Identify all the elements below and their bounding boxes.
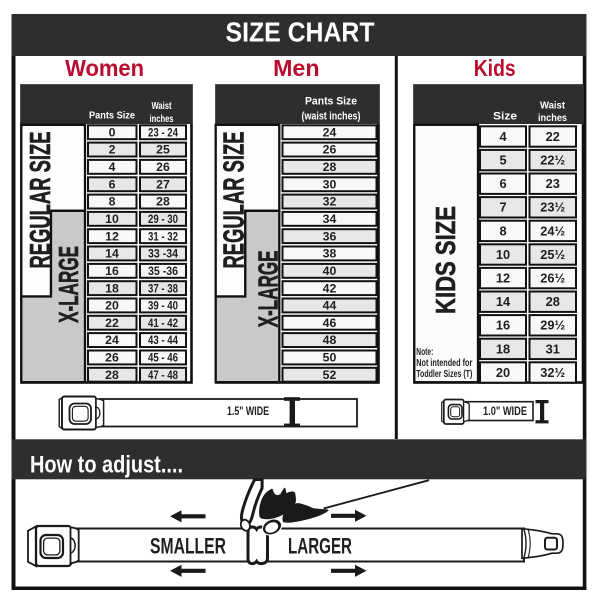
svg-text:40: 40 — [323, 264, 337, 278]
svg-text:26: 26 — [156, 160, 170, 174]
svg-text:1.0" WIDE: 1.0" WIDE — [483, 406, 527, 418]
svg-text:16: 16 — [496, 318, 510, 333]
svg-text:X-LARGE: X-LARGE — [53, 246, 84, 323]
svg-text:46: 46 — [323, 316, 337, 330]
svg-text:SMALLER: SMALLER — [150, 534, 226, 559]
svg-text:How to adjust....: How to adjust.... — [30, 452, 183, 479]
svg-text:8: 8 — [499, 223, 506, 238]
svg-text:18: 18 — [496, 341, 510, 356]
svg-text:Pants Size: Pants Size — [89, 110, 135, 122]
svg-text:20: 20 — [496, 365, 510, 380]
svg-text:37 - 38: 37 - 38 — [148, 281, 178, 295]
svg-text:31: 31 — [546, 341, 560, 356]
svg-text:10: 10 — [496, 247, 510, 262]
svg-text:4: 4 — [109, 160, 116, 174]
svg-text:22½: 22½ — [540, 153, 565, 168]
svg-text:14: 14 — [496, 294, 511, 309]
svg-text:4: 4 — [499, 129, 507, 144]
svg-text:12: 12 — [496, 271, 510, 286]
svg-text:33 -34: 33 -34 — [148, 247, 178, 261]
svg-text:Waist: Waist — [152, 101, 172, 112]
svg-text:2: 2 — [109, 143, 116, 157]
svg-text:X-LARGE: X-LARGE — [252, 250, 283, 327]
svg-text:10: 10 — [105, 212, 119, 226]
svg-text:25: 25 — [156, 143, 170, 157]
svg-text:6: 6 — [109, 177, 116, 191]
svg-text:31 - 32: 31 - 32 — [148, 229, 178, 243]
svg-text:8: 8 — [109, 195, 116, 209]
svg-text:32½: 32½ — [540, 365, 565, 380]
svg-text:16: 16 — [105, 264, 119, 278]
svg-text:Waist: Waist — [540, 100, 565, 112]
svg-text:39 - 40: 39 - 40 — [148, 299, 178, 313]
svg-text:32: 32 — [323, 195, 337, 209]
svg-text:52: 52 — [323, 368, 337, 382]
svg-text:20: 20 — [105, 299, 119, 313]
svg-text:41 - 42: 41 - 42 — [148, 316, 178, 330]
svg-text:22: 22 — [546, 129, 560, 144]
svg-text:26½: 26½ — [540, 271, 565, 286]
svg-text:24½: 24½ — [540, 223, 565, 238]
svg-text:42: 42 — [323, 281, 337, 295]
svg-text:25½: 25½ — [540, 247, 565, 262]
svg-text:14: 14 — [105, 247, 119, 261]
svg-text:23 - 24: 23 - 24 — [148, 125, 178, 139]
svg-text:Not intended for: Not intended for — [416, 358, 472, 369]
svg-text:35 -36: 35 -36 — [148, 264, 178, 278]
svg-text:1.5" WIDE: 1.5" WIDE — [227, 406, 269, 418]
svg-text:28: 28 — [546, 294, 560, 309]
svg-text:47 - 48: 47 - 48 — [148, 368, 178, 382]
svg-text:Pants Size: Pants Size — [305, 96, 357, 108]
svg-text:36: 36 — [323, 229, 337, 243]
svg-text:26: 26 — [105, 351, 119, 365]
svg-text:Kids: Kids — [474, 55, 516, 81]
svg-text:6: 6 — [499, 176, 506, 191]
svg-text:23: 23 — [546, 176, 560, 191]
svg-text:34: 34 — [323, 212, 337, 226]
svg-text:45 - 46: 45 - 46 — [148, 351, 178, 365]
svg-text:29 - 30: 29 - 30 — [148, 212, 178, 226]
svg-text:24: 24 — [323, 125, 337, 139]
svg-text:inches: inches — [538, 112, 567, 124]
svg-text:inches: inches — [150, 114, 174, 125]
svg-text:LARGER: LARGER — [288, 534, 352, 559]
svg-text:18: 18 — [105, 281, 119, 295]
svg-text:28: 28 — [105, 368, 119, 382]
svg-text:38: 38 — [323, 247, 337, 261]
svg-text:Note:: Note: — [416, 347, 433, 358]
svg-text:0: 0 — [109, 125, 116, 139]
svg-text:KIDS SIZE: KIDS SIZE — [430, 206, 461, 314]
svg-text:28: 28 — [323, 160, 337, 174]
svg-text:Men: Men — [273, 55, 319, 81]
svg-text:28: 28 — [156, 195, 170, 209]
svg-text:48: 48 — [323, 333, 337, 347]
svg-text:Women: Women — [65, 55, 144, 81]
svg-text:30: 30 — [323, 177, 337, 191]
svg-text:24: 24 — [105, 333, 119, 347]
svg-text:5: 5 — [499, 153, 506, 168]
svg-text:23½: 23½ — [540, 200, 565, 215]
svg-text:12: 12 — [105, 229, 119, 243]
svg-text:SIZE CHART: SIZE CHART — [226, 17, 375, 48]
svg-text:7: 7 — [499, 200, 506, 215]
svg-text:Toddler Sizes (T): Toddler Sizes (T) — [416, 369, 472, 380]
svg-text:29½: 29½ — [540, 318, 565, 333]
svg-text:44: 44 — [323, 299, 337, 313]
svg-text:22: 22 — [105, 316, 119, 330]
svg-text:(waist inches): (waist inches) — [302, 111, 361, 123]
svg-text:43 - 44: 43 - 44 — [148, 333, 178, 347]
svg-text:50: 50 — [323, 351, 337, 365]
svg-text:Size: Size — [493, 111, 517, 123]
svg-text:27: 27 — [156, 177, 170, 191]
svg-text:26: 26 — [323, 143, 337, 157]
svg-text:REGULAR SIZE: REGULAR SIZE — [219, 132, 251, 269]
